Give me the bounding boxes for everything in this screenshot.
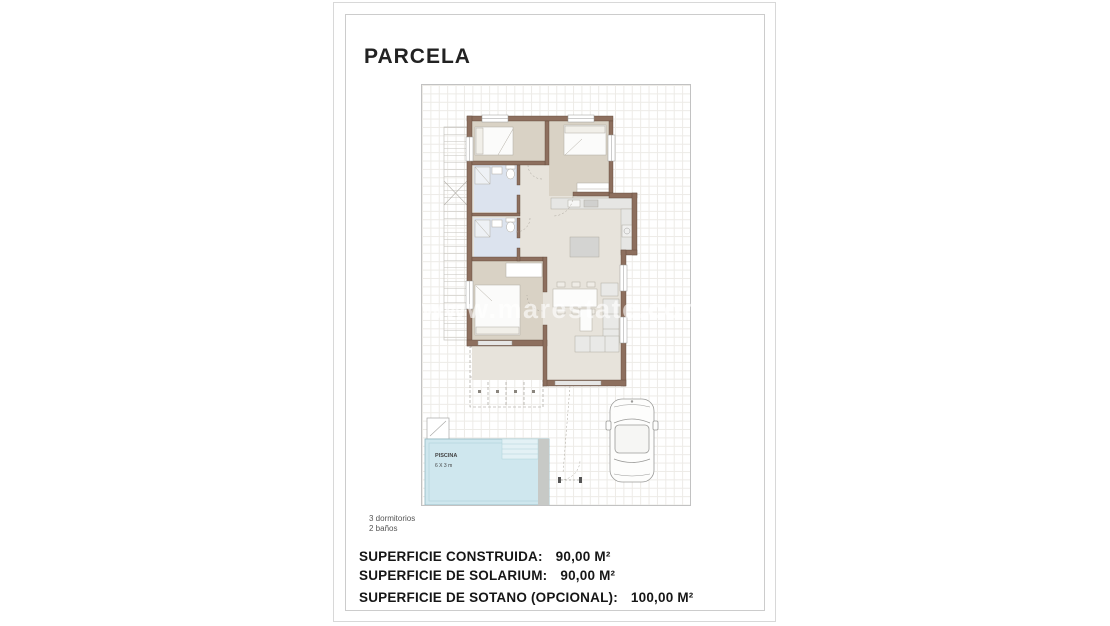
floor-plan-drawing: PISCINA 6 X 3 m (422, 85, 690, 505)
car (606, 399, 658, 482)
summary-value: 90,00 M² (556, 549, 611, 564)
page-title: PARCELA (364, 45, 471, 69)
coffee-table (580, 309, 592, 331)
summary-value: 100,00 M² (631, 590, 694, 605)
summary-label: SUPERFICIE CONSTRUIDA: (359, 549, 543, 564)
surface-summary: SUPERFICIE CONSTRUIDA:90,00 M² SUPERFICI… (359, 549, 694, 609)
gate-marks (558, 477, 582, 483)
exterior-staircase (444, 127, 467, 340)
summary-row-sotano: SUPERFICIE DE SOTANO (OPCIONAL):100,00 M… (359, 590, 694, 605)
plan-notes: 3 dormitorios 2 baños (369, 514, 415, 534)
summary-label: SUPERFICIE DE SOTANO (OPCIONAL): (359, 590, 618, 605)
summary-row-construida: SUPERFICIE CONSTRUIDA:90,00 M² (359, 549, 694, 564)
pool-edge (538, 439, 549, 505)
summary-row-solarium: SUPERFICIE DE SOLARIUM:90,00 M² (359, 568, 694, 583)
note-bathrooms: 2 baños (369, 524, 415, 534)
floor-plan-panel: PISCINA 6 X 3 m (421, 84, 691, 506)
pool-area: PISCINA 6 X 3 m (425, 418, 549, 505)
summary-label: SUPERFICIE DE SOLARIUM: (359, 568, 547, 583)
pool-size-label: 6 X 3 m (435, 463, 452, 469)
document-page: PARCELA (333, 2, 776, 622)
note-bedrooms: 3 dormitorios (369, 514, 415, 524)
kitchen-island (570, 237, 599, 257)
summary-value: 90,00 M² (560, 568, 615, 583)
pool-label: PISCINA (435, 453, 457, 459)
